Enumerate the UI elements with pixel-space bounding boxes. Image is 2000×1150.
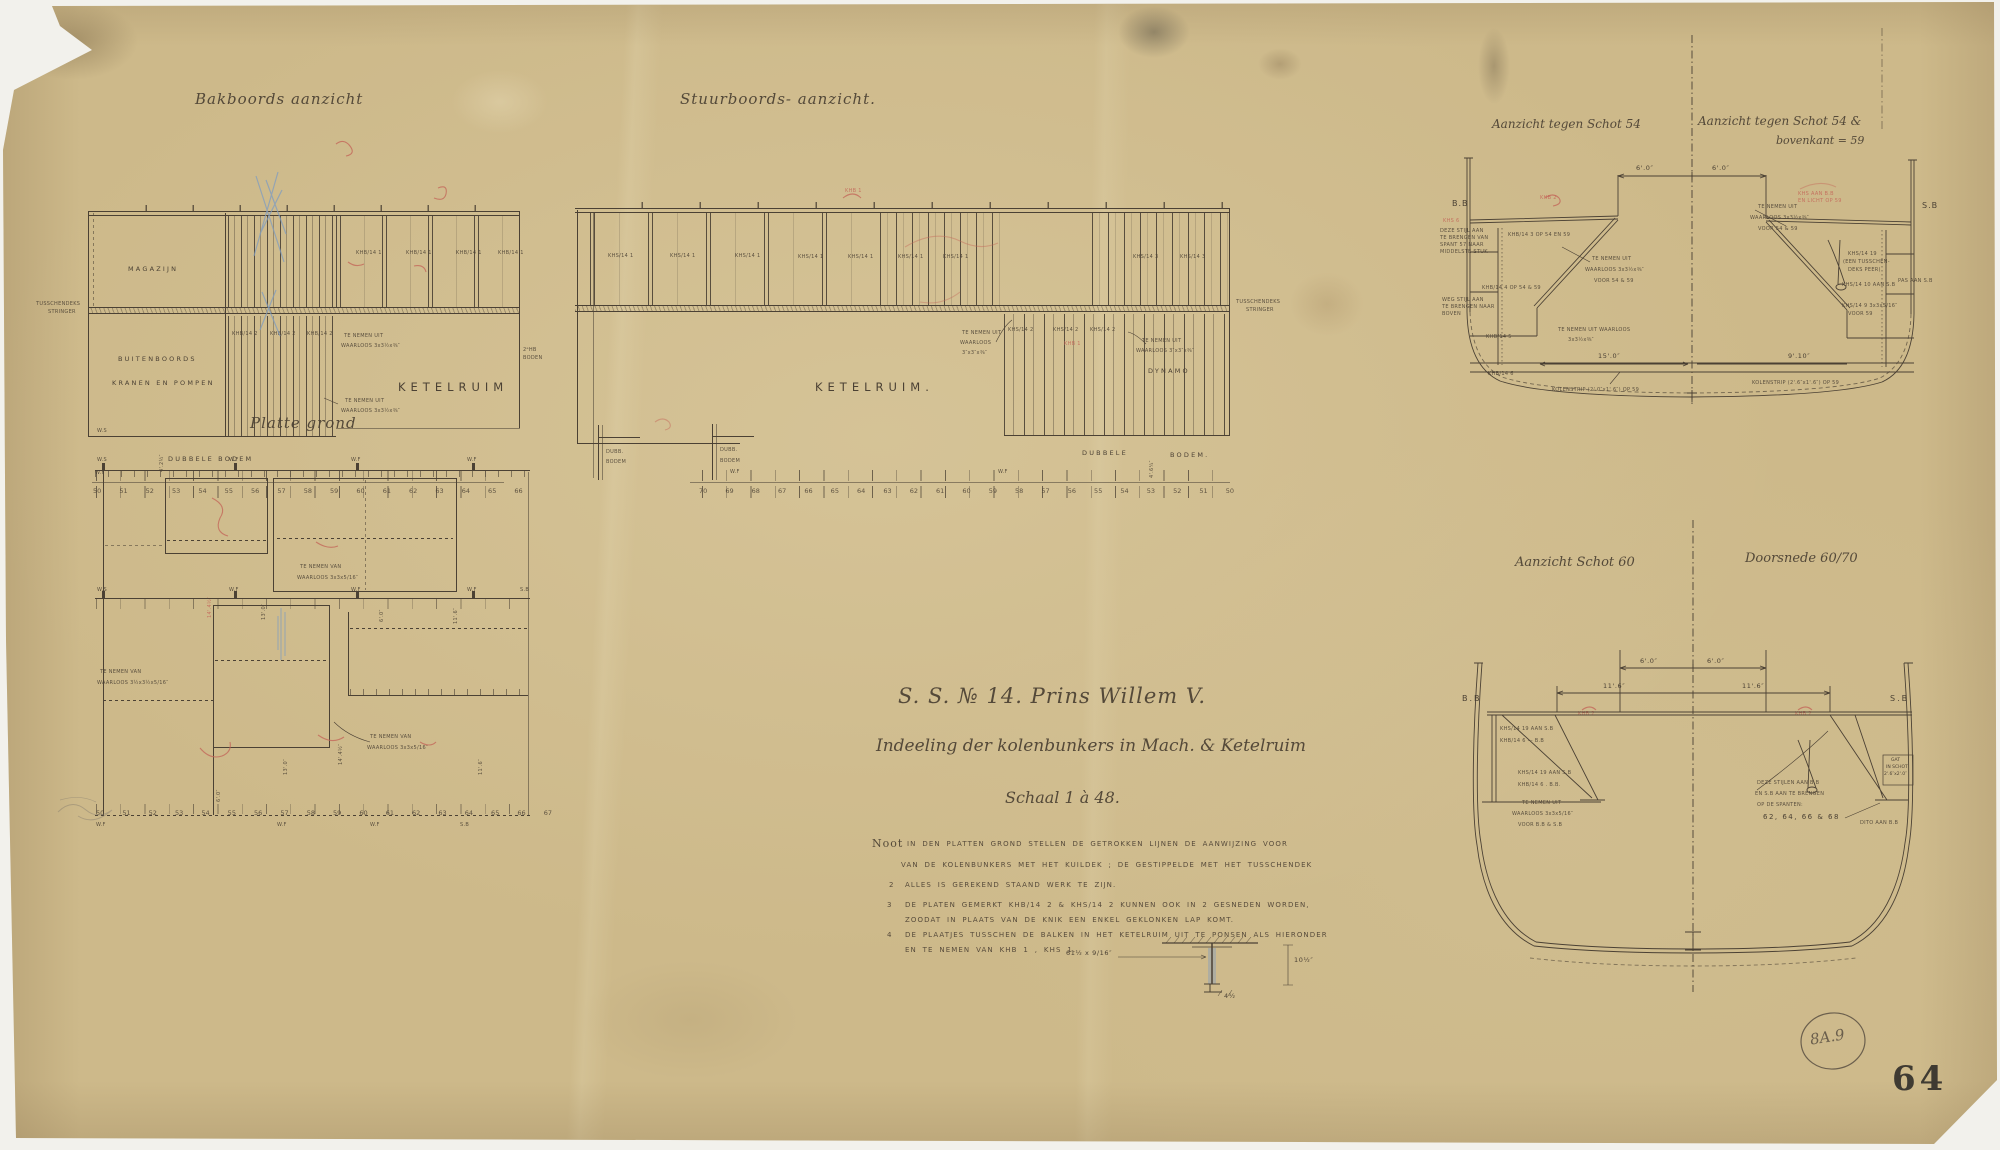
plate-mark-khs2: KHS/14 2 [1090, 328, 1115, 333]
plan-left-edge [103, 470, 104, 815]
label-wf: W.F [370, 823, 380, 828]
plate-mark-khs1: KHS/14 1 [670, 254, 695, 259]
label-wf: W.F [277, 823, 287, 828]
plate-mark-khs19: KHS/14 19 AAN S.B [1518, 771, 1571, 776]
stuurboord-right-edge [1229, 208, 1230, 435]
paper-stain [1478, 28, 1510, 104]
note-spanten-numbers: 62, 64, 66 & 68 [1763, 814, 1840, 821]
note-deze-stijl: DEZE STIJL AAN [1440, 229, 1484, 234]
note-1-line1: IN DEN PLATTEN GROND STELLEN DE GETROKKE… [907, 841, 1288, 848]
label-wf: W.F [998, 470, 1008, 475]
note-waarloos: 3x3½x⅜″ [1568, 338, 1594, 343]
red-annotation-khb: KHB 1 [845, 189, 862, 194]
dim-13-0: 13'.0″ [284, 759, 289, 775]
title-schot54-left: Aanzicht tegen Schot 54 [1492, 118, 1641, 130]
label-dubb-bodem: DUBB. [606, 450, 623, 455]
label-2e-hb-boden: 2ᵉHB [523, 348, 537, 353]
plan-bunker-dashed [167, 540, 266, 541]
label-ketelruim-stuurboord: KETELRUIM. [815, 382, 934, 394]
note-deze-stijl: SPANT 57 NAAR [1440, 243, 1484, 248]
label-dubbele-bodem-bakboord: DUBBELE BODEM [168, 456, 253, 463]
dim-6-0: 6'.0″ [1640, 658, 1658, 665]
stuurboord-left-edge [577, 210, 578, 443]
label-2e-hb-boden: BODEN [523, 356, 543, 361]
note-pas-aan-sb: PAS AAN S.B [1898, 279, 1933, 284]
note-kolenstrip: KOLENSTRIP (2'.0″x1'.6″) OP 59 [1552, 388, 1639, 393]
label-ws: W.S [97, 588, 107, 593]
red-annotation: KHS 6 [1443, 219, 1459, 224]
note-kolenstrip: KOLENSTRIP (2'.6″x1'.6″) OP 59 [1752, 381, 1839, 386]
note-3-line1: DE PLATEN GEMERKT KHB/14 2 & KHS/14 2 KU… [905, 902, 1310, 909]
label-wf: W.F [351, 458, 361, 463]
notes-label: Noot [872, 838, 903, 849]
note-deze-stijlen: DEZE STIJLEN AAN B.B [1757, 781, 1819, 786]
detail-dim-left: 61½ x 9/16″ [1066, 950, 1112, 957]
plate-mark-khs19: (EEN TUSSCHEN- [1843, 260, 1890, 265]
title-stuurboord: Stuurboords- aanzicht. [680, 92, 876, 107]
label-tusschendeks-stringer: TUSSCHENDEKS [1236, 300, 1280, 305]
stuurboord-frame-numbers: 70 69 68 67 66 65 64 63 62 61 60 59 58 5… [699, 488, 1234, 495]
stuurboord-leg [602, 425, 603, 480]
plate-mark-khb2: KHB/14 2 [307, 332, 333, 337]
note-waarloos: WAARLOOS 3x3½x⅜″ [341, 344, 400, 349]
stuurboord-bunker-plates-lower [1004, 314, 1230, 435]
paper-stain [452, 70, 548, 134]
plate-mark-khs3: KHS/14 3 [1133, 255, 1158, 260]
plan-dashed-line [350, 628, 528, 629]
dim-11-6: 11'.6″ [1742, 683, 1764, 690]
plate-mark-khs3: KHS/14 3 [1180, 255, 1205, 260]
note-dito: DITO AAN B.B [1860, 821, 1898, 826]
plan-watertight-frame-mark [234, 463, 237, 471]
note-te-nemen: TE NEMEN VAN [100, 670, 141, 675]
plate-mark-khs19: DEKS PEER) [1848, 268, 1881, 273]
red-annotation: KHS AAN B.B [1798, 192, 1834, 197]
note-waarloos: WAARLOOS 3x3½x⅜″ [341, 409, 400, 414]
paper-sheet: Bakboords aanzicht Stuurboords- aanzicht… [0, 0, 2000, 1150]
note-gat: GAT [1891, 759, 1900, 764]
plate-mark-khb1: KHB/14 1 [356, 251, 382, 256]
red-annotation: KHB 2 [1578, 712, 1595, 717]
bakboord-tusschendeks-stringer [88, 307, 520, 314]
plate-mark-khs1: KHS/14 1 [798, 255, 823, 260]
plate-mark-khb6: KHB/14 6 . B.B. [1518, 783, 1561, 788]
schot54-linework [1464, 28, 1917, 405]
title-schot54-right-line2: bovenkant = 59 [1776, 135, 1864, 146]
title-block-scale: Schaal 1 à 48. [1005, 790, 1120, 806]
bakboord-bunker-plates-upper [228, 215, 334, 308]
bakboord-bunker-bays-upper [336, 215, 520, 308]
stuurboord-leg-top [598, 437, 640, 438]
plan-top-ticks [95, 471, 530, 477]
dim-11-6: 11'.6″ [1603, 683, 1625, 690]
plan-bunker-dashed [215, 660, 328, 661]
title-bakboord: Bakboords aanzicht [195, 92, 363, 107]
note-voor: VOOR B.B & S.B [1518, 823, 1562, 828]
plate-mark-khb4: KHB/14 4 OP 54 & 59 [1482, 286, 1541, 291]
dim-15-0: 15'.0″ [1598, 353, 1620, 360]
label-buitenboords: BUITENBOORDS [118, 356, 197, 363]
label-ws: W.S [97, 458, 107, 463]
note-te-nemen: TE NEMEN UIT [344, 334, 383, 339]
dim-14-4half: 14'.4½″ [339, 744, 344, 765]
plan-frame-numbers: 50 51 52 53 54 55 56 57 58 59 60 61 62 6… [96, 810, 552, 817]
note-voor: VOOR 54 & 59 [1594, 279, 1634, 284]
label-bb: B.B [1462, 695, 1482, 703]
plate-mark-khs19: KHS/14 19 [1848, 252, 1877, 257]
dim-6-0: 6'.0″ [1707, 658, 1725, 665]
plate-mark-khs9: VOOR 59 [1848, 312, 1873, 317]
note-te-nemen: TE NEMEN UIT [345, 399, 384, 404]
note-te-nemen: TE NEMEN UIT [962, 331, 1001, 336]
label-wf: W.F [229, 458, 239, 463]
red-annotation-khb: KHB 1 [1064, 342, 1081, 347]
note-waarloos-size: 3″x3″x⅜″ [962, 351, 987, 356]
note-waarloos: WAARLOOS 3x3½x⅜″ [1585, 268, 1644, 273]
note-2: ALLES IS GEREKEND STAAND WERK TE ZIJN. [905, 882, 1116, 889]
plan-bunker-outline [165, 478, 268, 554]
plate-mark-khs10: KHS/14 10 AAN S.B [1842, 283, 1895, 288]
label-bb: B.B [1452, 200, 1469, 208]
plan-bunker-edge [348, 612, 349, 695]
note-weg-stijl: BOVEN [1442, 312, 1461, 317]
red-annotation: EN LICHT OP 59 [1798, 199, 1842, 204]
plate-mark-khs1: KHS/14 1 [848, 255, 873, 260]
title-block-ship: S. S. № 14. Prins Willem V. [898, 686, 1206, 707]
plan-dashed-line [105, 545, 163, 546]
bakboord-bottom-line [336, 428, 520, 429]
label-dubb-bodem: BODEM [606, 460, 626, 465]
stuurboord-ruler-ticks-top [702, 470, 1222, 481]
stuurboord-frame-ruler [690, 482, 1230, 483]
title-doorsnede: Doorsnede 60/70 [1745, 552, 1858, 565]
plan-bunker-ticks [350, 689, 528, 695]
note-deze-stijlen: EN S.B AAN TE BRENGEN [1755, 792, 1824, 797]
label-wf: W.F [467, 458, 477, 463]
plan-bunker-outline [213, 605, 330, 748]
bakboord-magazijn-bulkhead [225, 213, 226, 437]
title-schot60: Aanzicht Schot 60 [1515, 556, 1635, 569]
bakboord-deck-ticks [100, 205, 510, 211]
label-sb: S.B [460, 823, 469, 828]
plate-mark-khb2: KHB/14 2 [232, 332, 258, 337]
note-te-nemen: TE NEMEN UIT WAARLOOS [1558, 328, 1630, 333]
plate-mark-khb1: KHB/14 1 [498, 251, 524, 256]
note-waarloos: WAARLOOS 3x3x5/16″ [297, 576, 358, 581]
note-waarloos: WAARLOOS 3x3x5/16″ [367, 746, 428, 751]
note-3-line2: ZOODAT IN PLAATS VAN DE KNIK EEN ENKEL G… [905, 917, 1234, 924]
note-te-nemen: TE NEMEN VAN [300, 565, 341, 570]
plan-bunker-dashed [103, 700, 213, 701]
label-tusschendeks-stringer: TUSSCHENDEKS [36, 302, 80, 307]
dim-6-0: 6'.0″ [217, 789, 222, 802]
note-waarloos: WAARLOOS 3x3½x⅜″ [1750, 216, 1809, 221]
note-deze-stijl: TE BRENGEN VAN [1440, 236, 1488, 241]
stuurboord-bunker-plates-upper2 [1092, 212, 1230, 306]
plate-mark-khb5: KHB/14 5 [1486, 335, 1512, 340]
note-weg-stijl: WEG STIJL AAN [1442, 298, 1484, 303]
plate-mark-khb1: KHB/14 1 [406, 251, 432, 256]
plate-mark-khs19: KHS/14 19 AAN S.B [1500, 727, 1553, 732]
plate-ref-number: 8A.9 [1809, 1027, 1846, 1047]
plate-mark-khb1: KHB/14 1 [456, 251, 482, 256]
plan-bunker-dashed-v [365, 480, 366, 590]
detail-dim-bottom: 4½ [1224, 993, 1236, 1000]
note-4-line2: EN TE NEMEN VAN KHB 1 , KHS 1. [905, 947, 1076, 954]
label-wf: W.F [730, 470, 740, 475]
paper-stain [1118, 6, 1190, 58]
detail-dim-right: 10½″ [1294, 957, 1313, 964]
label-ws: W.S [97, 429, 107, 434]
note-gat: IN SCHOT [1886, 766, 1908, 771]
stuurboord-leg-top [712, 436, 754, 437]
stuurboord-bunker-bays-upper [590, 212, 880, 306]
note-te-nemen: TE NEMEN UIT [1142, 339, 1181, 344]
label-magazijn: MAGAZIJN [128, 266, 178, 273]
sheet-number-stamp: 64 [1892, 1062, 1947, 1096]
red-annotation: KHB 2 [1795, 712, 1812, 717]
label-wf: W.F [96, 823, 106, 828]
plate-mark-khs2: KHS/14 2 [1008, 328, 1033, 333]
note-waarloos: WAARLOOS 3″x3″x⅜″ [1136, 349, 1194, 354]
dim-6-0: 6'.0″ [380, 609, 385, 622]
note-waarloos: WAARLOOS [960, 341, 991, 346]
label-dubb-bodem: DUBB. [720, 448, 737, 453]
note-3-num: 3 [887, 902, 893, 909]
note-te-nemen: TE NEMEN UIT [1758, 205, 1797, 210]
bakboord-shell-inner-line [93, 213, 94, 308]
plate-mark-khs9: KHS/14 9 3x3x5/16″ [1842, 304, 1897, 309]
note-4-line1: DE PLAATJES TUSSCHEN DE BALKEN IN HET KE… [905, 932, 1328, 939]
label-tusschendeks-stringer: STRINGER [48, 310, 76, 315]
dim-4-6quarter: 4'.6¼″ [1150, 460, 1155, 478]
bakboord-shell-line [88, 211, 89, 437]
stuurboord-tanktop-line [1004, 435, 1230, 436]
stuurboord-inner-vertical [593, 212, 594, 478]
dim-9-10: 9'.10″ [1788, 353, 1810, 360]
label-dubbele-bodem-stuurboord: BODEM. [1170, 452, 1209, 459]
label-sb: S.B [520, 588, 529, 593]
label-wf: W.F [467, 588, 477, 593]
title-schot54-right: Aanzicht tegen Schot 54 & [1698, 115, 1861, 127]
plan-bunker-edge [348, 695, 528, 696]
note-te-nemen: TE NEMEN VAN [370, 735, 411, 740]
plate-mark-khs2: KHS/14 2 [1053, 328, 1078, 333]
plate-mark-khs1: KHS/14 1 [898, 255, 923, 260]
plan-right-edge [528, 472, 529, 815]
note-te-nemen: TE NEMEN UIT [1522, 801, 1561, 806]
label-dynamo: DYNAMO [1148, 368, 1190, 375]
scanned-ship-drawing: Bakboords aanzicht Stuurboords- aanzicht… [0, 0, 2000, 1150]
note-gat: 2'.6″x2'.0″ [1884, 773, 1907, 778]
dim-6-0: 6'.0″ [1636, 165, 1654, 172]
note-deze-stijl: MIDDELSTE STUK [1440, 250, 1488, 255]
note-deze-stijlen: OP DE SPANTEN: [1757, 803, 1803, 808]
label-wf: W.F [351, 588, 361, 593]
plate-mark-khs1: KHS/14 1 [608, 254, 633, 259]
plate-mark-khb2: KHB/14 2 [270, 332, 296, 337]
note-voor: VOOR 54 & 59 [1758, 227, 1798, 232]
note-te-nemen: TE NEMEN UIT [1592, 257, 1631, 262]
label-dubb-bodem: BODEM [720, 459, 740, 464]
dim-6-0: 6'.0″ [1712, 165, 1730, 172]
paper-stain [1258, 48, 1302, 80]
label-sb: S.B [1922, 202, 1938, 210]
paper-stain [8, 2, 138, 80]
note-weg-stijl: TE BRENGEN NAAR [1442, 305, 1495, 310]
plate-mark-khb6: KHB/14 6 — B.B [1500, 739, 1544, 744]
stuurboord-deck-ticks [585, 202, 1225, 208]
stuurboord-tusschendeks-stringer [575, 305, 1230, 312]
red-annotation: KHB 2 [1540, 196, 1557, 201]
schot60-linework [1473, 520, 1913, 992]
title-block-subject: Indeeling der kolenbunkers in Mach. & Ke… [876, 738, 1306, 755]
plate-mark-khb6: KHB/14 6 [1488, 372, 1514, 377]
label-wf: W.F [229, 588, 239, 593]
label-ketelruim-bakboord: KETELRUIM [398, 382, 508, 394]
stuurboord-leg [598, 425, 599, 480]
note-waarloos: WAARLOOS 3x3x5/16″ [1512, 812, 1573, 817]
note-2-num: 2 [889, 882, 895, 889]
label-tusschendeks-stringer: STRINGER [1246, 308, 1274, 313]
bakboord-right-edge [519, 212, 520, 428]
paper-stain [1290, 272, 1364, 336]
dim-11-6: 11'.6″ [454, 608, 459, 624]
paper-stain [580, 960, 800, 1080]
plate-mark-khs1: KHS/14 1 [735, 254, 760, 259]
label-kranen-en-pompen: KRANEN EN POMPEN [112, 380, 215, 387]
note-1-line2: VAN DE KOLENBUNKERS MET HET KUILDEK ; DE… [901, 862, 1312, 869]
bakboord-keel-line [88, 436, 336, 437]
dim-11-6: 11'.6″ [479, 759, 484, 775]
label-dubbele-bodem-stuurboord: DUBBELE [1082, 450, 1128, 457]
plan-watertight-frame-mark [356, 463, 359, 471]
plate-mark-khs1: KHS/14 1 [943, 255, 968, 260]
plan-bunker-edge [213, 700, 214, 815]
note-waarloos: WAARLOOS 3½x3½x5/16″ [97, 681, 168, 686]
plate-mark-khb3: KHB/14 3 OP 54 EN 59 [1508, 233, 1570, 238]
note-4-num: 4 [887, 932, 893, 939]
plan-watertight-frame-mark [472, 463, 475, 471]
note-detail-sketch [1118, 937, 1293, 996]
label-sb: S.B [1890, 695, 1909, 703]
